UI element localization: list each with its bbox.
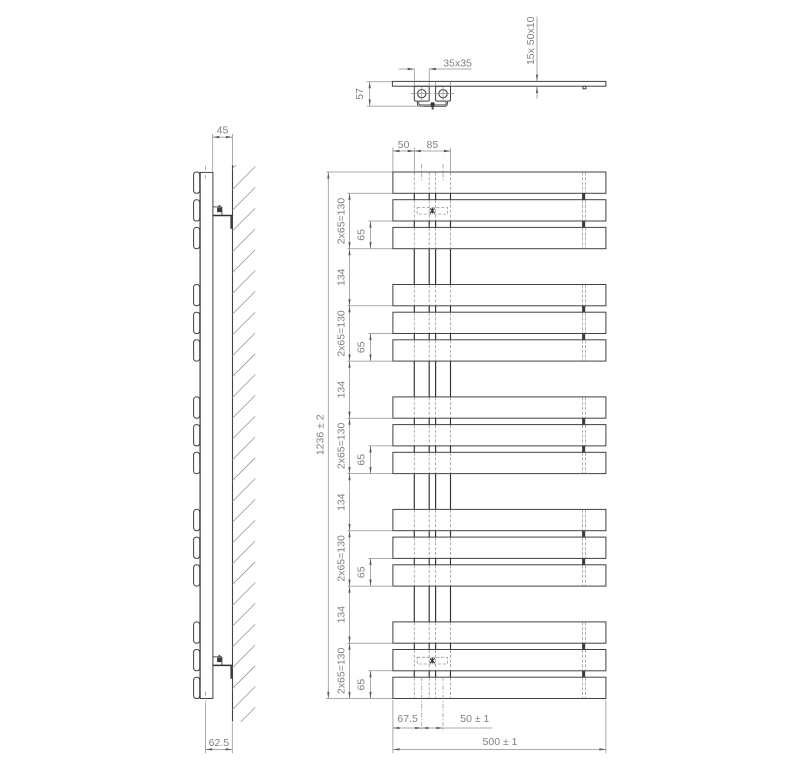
svg-text:2x65=130: 2x65=130	[336, 535, 348, 582]
svg-text:15x 50x10: 15x 50x10	[525, 16, 537, 65]
svg-text:134: 134	[336, 606, 348, 624]
svg-text:62.5: 62.5	[209, 737, 230, 749]
svg-text:50 ± 1: 50 ± 1	[460, 713, 489, 725]
svg-text:134: 134	[336, 268, 348, 286]
svg-text:57: 57	[354, 88, 366, 100]
svg-text:1236 ± 2: 1236 ± 2	[314, 414, 326, 455]
svg-text:500 ± 1: 500 ± 1	[483, 736, 518, 748]
svg-text:65: 65	[355, 229, 367, 241]
svg-text:134: 134	[336, 493, 348, 511]
svg-text:65: 65	[355, 341, 367, 353]
svg-text:2x65=130: 2x65=130	[336, 310, 348, 357]
svg-text:65: 65	[355, 566, 367, 578]
svg-text:45: 45	[217, 124, 229, 136]
svg-text:35x35: 35x35	[443, 58, 472, 70]
svg-text:2x65=130: 2x65=130	[336, 423, 348, 470]
svg-text:67.5: 67.5	[397, 713, 418, 725]
svg-text:2x65=130: 2x65=130	[336, 647, 348, 694]
svg-text:2x65=130: 2x65=130	[336, 198, 348, 245]
svg-text:65: 65	[355, 679, 367, 691]
svg-text:85: 85	[427, 139, 439, 151]
svg-text:50: 50	[398, 139, 410, 151]
svg-text:65: 65	[355, 454, 367, 466]
svg-text:134: 134	[336, 381, 348, 399]
